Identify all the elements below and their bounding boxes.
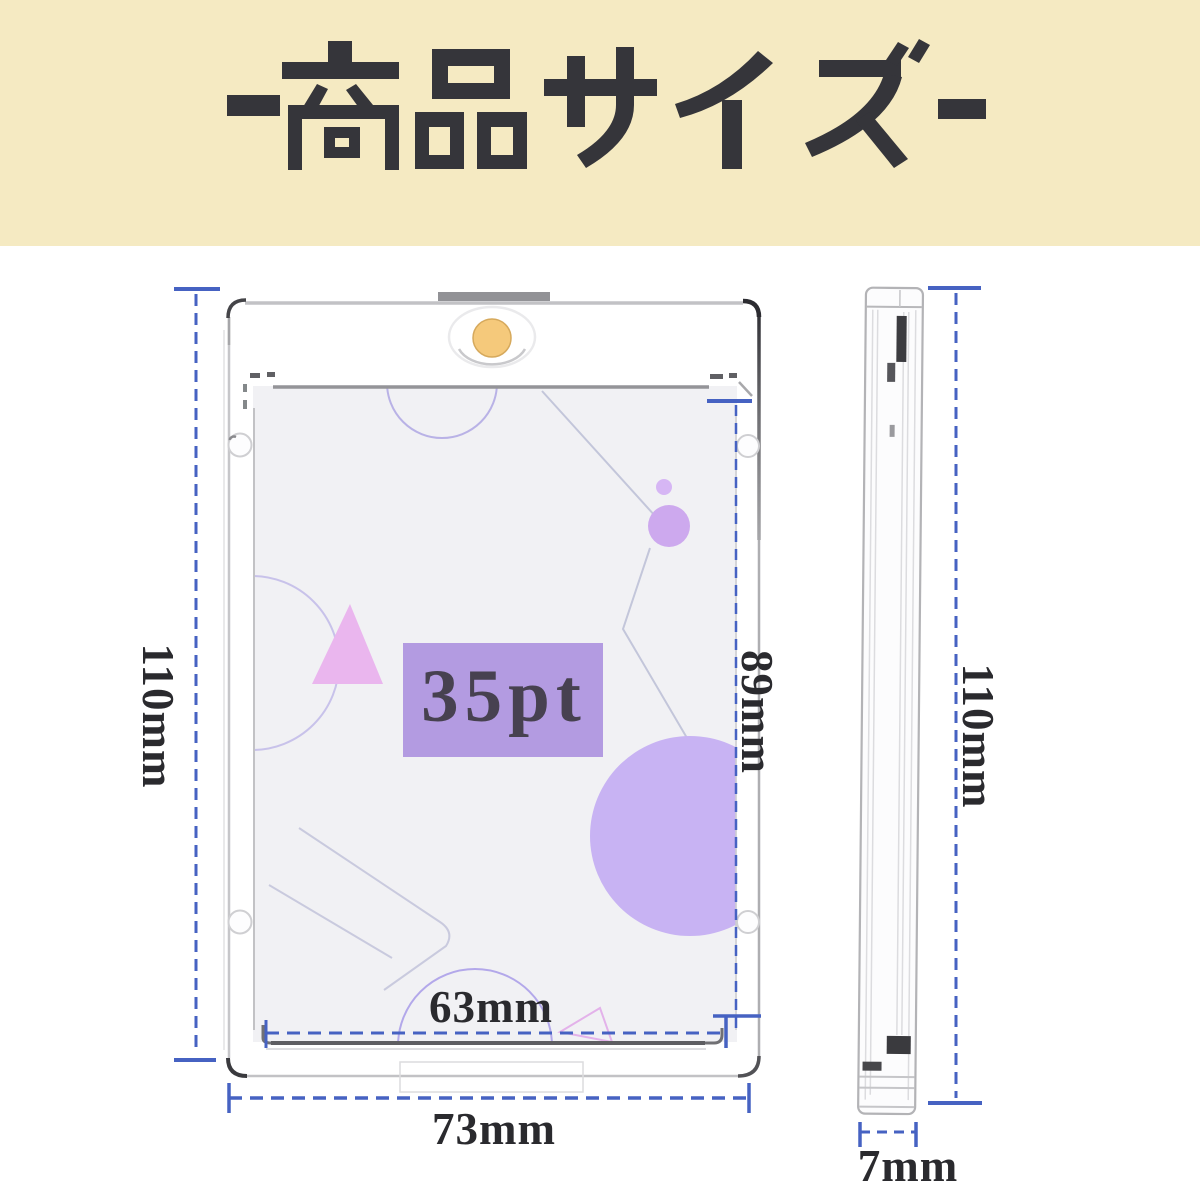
svg-text:63mm: 63mm — [429, 982, 553, 1032]
svg-text:110mm: 110mm — [953, 664, 1003, 809]
svg-text:73mm: 73mm — [432, 1104, 556, 1154]
svg-text:35pt: 35pt — [421, 655, 587, 738]
svg-text:110mm: 110mm — [133, 644, 183, 789]
svg-text:7mm: 7mm — [858, 1141, 958, 1191]
svg-text:89mm: 89mm — [732, 650, 782, 774]
